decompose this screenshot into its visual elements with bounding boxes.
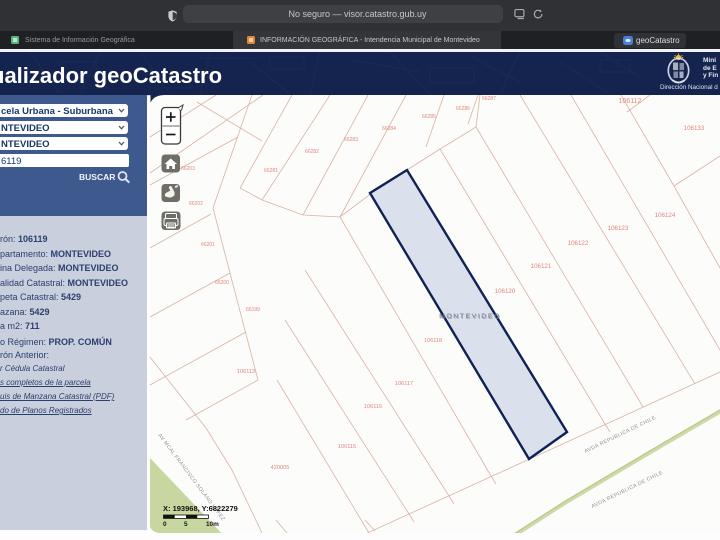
svg-text:10m: 10m xyxy=(206,521,219,528)
svg-text:66202: 66202 xyxy=(189,201,203,207)
svg-text:420005: 420005 xyxy=(271,465,290,471)
svg-text:106120: 106120 xyxy=(495,288,516,295)
svg-text:106112: 106112 xyxy=(619,98,642,105)
svg-text:MONTEVIDEO: MONTEVIDEO xyxy=(439,313,501,320)
svg-text:106133: 106133 xyxy=(684,125,705,132)
svg-text:106113: 106113 xyxy=(237,369,255,375)
svg-text:66286: 66286 xyxy=(456,106,470,112)
svg-text:66282: 66282 xyxy=(305,149,319,155)
svg-text:0: 0 xyxy=(163,521,167,528)
svg-text:66203: 66203 xyxy=(181,166,195,172)
svg-text:106115: 106115 xyxy=(338,444,356,450)
svg-text:66284: 66284 xyxy=(382,126,396,132)
svg-text:106116: 106116 xyxy=(364,404,382,410)
svg-text:66201: 66201 xyxy=(201,242,215,248)
svg-text:66287: 66287 xyxy=(482,96,496,102)
svg-text:106123: 106123 xyxy=(608,225,629,232)
svg-text:106124: 106124 xyxy=(655,212,676,219)
svg-text:66199: 66199 xyxy=(246,307,260,313)
svg-text:106121: 106121 xyxy=(531,263,552,270)
svg-text:106118: 106118 xyxy=(424,338,442,344)
svg-text:66283: 66283 xyxy=(344,137,358,143)
svg-text:X: 193968, Y:6822279: X: 193968, Y:6822279 xyxy=(163,504,238,513)
svg-text:106117: 106117 xyxy=(395,381,413,387)
svg-text:66281: 66281 xyxy=(264,168,278,174)
svg-text:66285: 66285 xyxy=(422,114,436,120)
svg-text:66200: 66200 xyxy=(215,280,229,286)
svg-text:5: 5 xyxy=(184,521,188,528)
svg-text:106122: 106122 xyxy=(568,240,589,247)
